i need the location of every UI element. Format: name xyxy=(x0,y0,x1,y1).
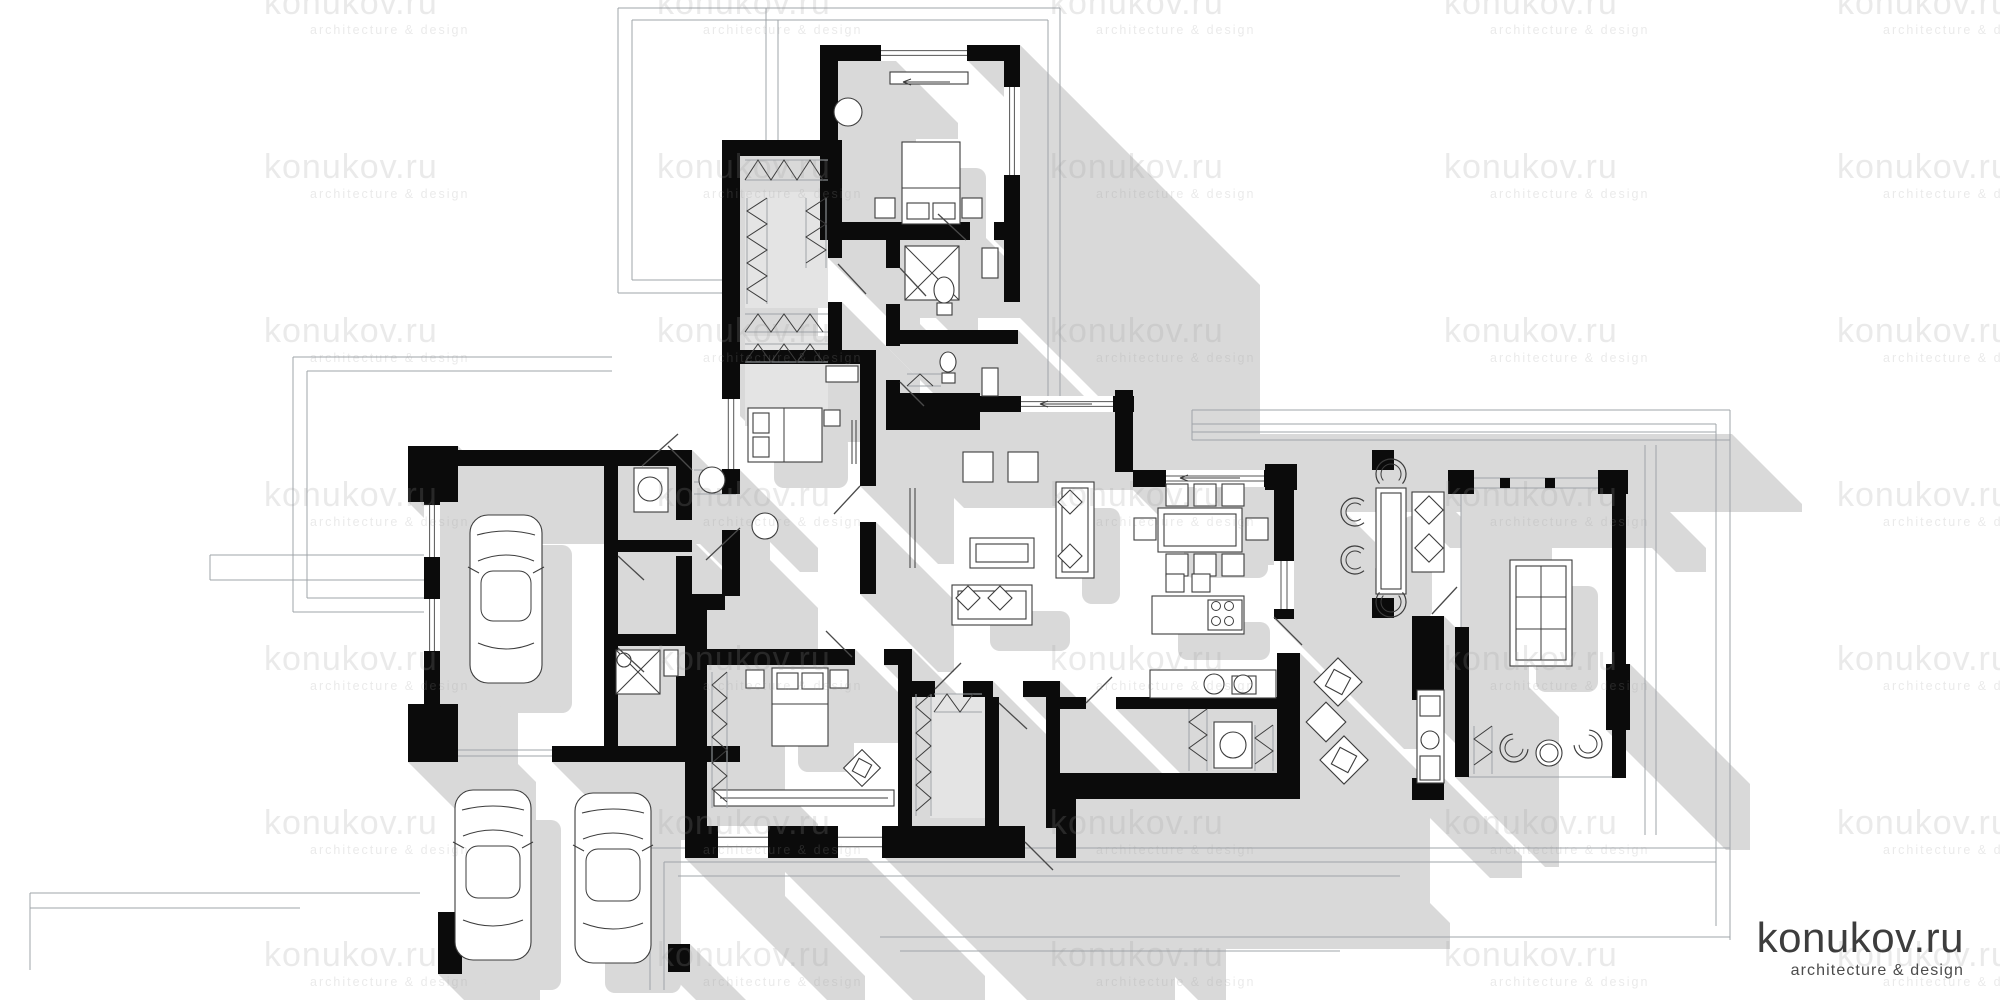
brand-title: konukov.ru xyxy=(1757,917,1964,959)
brand-subtitle: architecture & design xyxy=(1757,962,1964,980)
brand-logo: konukov.ru architecture & design xyxy=(1757,917,1964,980)
floor-plan-page: konukov.ruarchitecture & designkonukov.r… xyxy=(0,0,2000,1000)
floor-plan-canvas xyxy=(0,0,2000,1000)
